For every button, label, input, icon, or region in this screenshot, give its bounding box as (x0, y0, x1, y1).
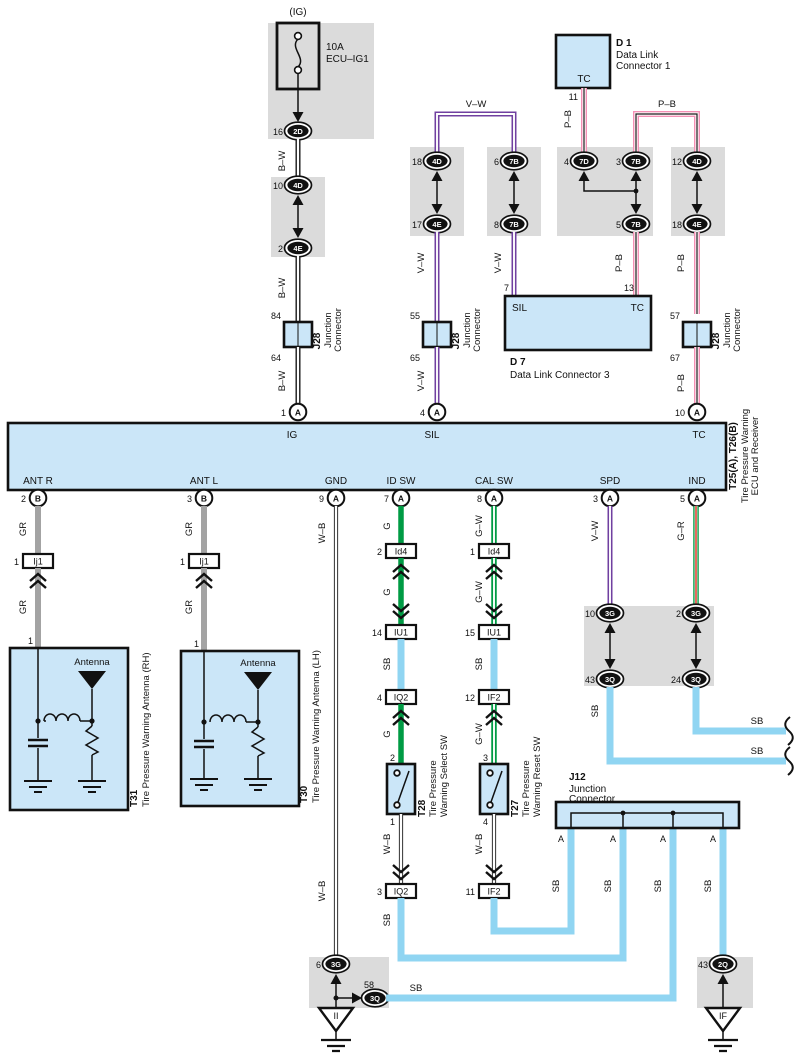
t28-switch (387, 764, 415, 814)
svg-text:A: A (710, 834, 716, 844)
inline-id4-b: Id4 1 (470, 544, 509, 558)
wire-code: G–W (474, 515, 485, 537)
wire-code: G–R (676, 521, 687, 541)
svg-text:9: 9 (319, 494, 324, 504)
svg-text:4: 4 (483, 817, 488, 827)
svg-text:J12: J12 (569, 772, 586, 783)
svg-text:IQ2: IQ2 (394, 887, 409, 897)
svg-text:Data Link: Data Link (616, 50, 659, 61)
svg-text:J28: J28 (451, 332, 462, 349)
svg-text:T28: T28 (417, 799, 428, 817)
ground-ii: II (319, 1008, 353, 1051)
svg-text:4E: 4E (293, 244, 302, 253)
svg-text:67: 67 (670, 353, 680, 363)
svg-text:A: A (491, 494, 497, 504)
svg-text:A: A (434, 408, 440, 418)
svg-text:7D: 7D (579, 157, 589, 166)
svg-text:12: 12 (465, 693, 475, 703)
svg-text:13: 13 (624, 283, 634, 293)
ecu-pin-ant-l: B 3 (187, 490, 212, 507)
svg-text:3G: 3G (605, 609, 615, 618)
svg-text:SPD: SPD (600, 476, 621, 487)
fuse-name: ECU–IG1 (326, 54, 369, 65)
svg-text:2D: 2D (293, 127, 303, 136)
svg-text:43: 43 (585, 675, 595, 685)
svg-text:3: 3 (483, 753, 488, 763)
shield-areas (268, 23, 753, 1008)
svg-text:A: A (660, 834, 666, 844)
svg-text:2: 2 (278, 244, 283, 254)
ecu-pin-sil: A 4 (420, 404, 445, 421)
t30-name: Tire Pressure Warning Antenna (LH) (311, 650, 322, 803)
inline-iu1-b: IU1 15 (465, 625, 509, 639)
svg-text:IU1: IU1 (394, 628, 408, 638)
svg-text:8: 8 (477, 494, 482, 504)
wire-code: P–B (676, 254, 687, 272)
svg-text:3: 3 (187, 494, 192, 504)
wire-code: SB (603, 880, 614, 893)
svg-text:3: 3 (377, 887, 382, 897)
wire-code: SB (590, 705, 601, 718)
svg-text:Connector: Connector (732, 308, 743, 352)
svg-text:5: 5 (616, 220, 621, 230)
wire-code: W–B (474, 834, 485, 855)
t30-code: T30 (299, 785, 310, 803)
t30-antenna-box: Antenna (181, 651, 299, 806)
svg-text:7: 7 (504, 283, 509, 293)
svg-text:Connector: Connector (333, 308, 344, 352)
svg-text:Id4: Id4 (395, 547, 408, 557)
svg-text:IF: IF (719, 1011, 728, 1021)
svg-text:24: 24 (671, 675, 681, 685)
fuse-rating: 10A (326, 42, 344, 53)
wire-code: B–W (277, 278, 288, 299)
svg-text:2Q: 2Q (718, 960, 728, 969)
t31-code: T31 (129, 789, 140, 807)
svg-text:11: 11 (466, 887, 475, 897)
svg-text:15: 15 (465, 628, 475, 638)
wire-code: V–W (416, 253, 427, 274)
d7-connector: 7 13 SIL TC D 7 Data Link Connector 3 (504, 283, 651, 381)
ant-l-circuit: GR Ij1 1 GR 1 Antenna T30 Tire Pressure … (180, 506, 322, 806)
cal-sw-circuit: G–W Id4 1 G–W IU1 15 SB IF2 12 G–W 3 T27… (465, 506, 571, 931)
svg-text:84: 84 (271, 311, 281, 321)
svg-text:8: 8 (494, 220, 499, 230)
svg-text:2: 2 (21, 494, 26, 504)
wire-code: W–B (317, 881, 328, 902)
svg-text:J28: J28 (711, 332, 722, 349)
svg-text:CAL SW: CAL SW (475, 476, 514, 487)
wire-code: V–W (590, 521, 601, 542)
wire-code: GR (18, 522, 29, 536)
svg-text:Connector: Connector (569, 794, 616, 805)
svg-text:A: A (694, 494, 700, 504)
inline-if2-a: IF2 12 (465, 690, 509, 704)
svg-text:43: 43 (698, 960, 708, 970)
svg-text:IND: IND (688, 476, 705, 487)
svg-text:SIL: SIL (512, 303, 527, 314)
inline-if2-b: IF2 11 (466, 884, 509, 898)
continuation-brace (785, 747, 793, 775)
inline-iq2-b: IQ2 3 (377, 884, 416, 898)
t31-antenna-box: Antenna (10, 648, 128, 810)
svg-text:1: 1 (470, 547, 475, 557)
svg-text:D 7: D 7 (510, 357, 526, 368)
wire-code: GR (184, 522, 195, 536)
ecu-pin-spd: A 3 (593, 490, 618, 507)
svg-text:7B: 7B (631, 157, 641, 166)
wire-code: G–W (474, 581, 485, 603)
svg-text:16: 16 (273, 127, 283, 137)
svg-text:IU1: IU1 (487, 628, 501, 638)
svg-text:14: 14 (372, 628, 382, 638)
svg-text:Antenna: Antenna (74, 657, 110, 668)
svg-text:3G: 3G (691, 609, 701, 618)
wire-code: V–W (493, 253, 504, 274)
svg-text:17: 17 (412, 220, 422, 230)
wire-code: SB (751, 746, 764, 757)
svg-text:Antenna: Antenna (240, 658, 276, 669)
svg-text:T27: T27 (510, 799, 521, 817)
inline-iq2-a: IQ2 4 (377, 690, 416, 704)
svg-text:2: 2 (676, 609, 681, 619)
svg-text:T25(A), T26(B): T25(A), T26(B) (728, 422, 739, 490)
svg-text:10: 10 (675, 408, 685, 418)
wire-code: G (382, 522, 393, 529)
svg-text:Connector 1: Connector 1 (616, 61, 671, 72)
svg-text:4: 4 (377, 693, 382, 703)
svg-text:A: A (694, 408, 700, 418)
junction-j28-1: 84 64 J28 Junction Connector (271, 308, 344, 363)
svg-text:7B: 7B (509, 220, 519, 229)
svg-text:ANT L: ANT L (190, 476, 219, 487)
svg-text:18: 18 (672, 220, 682, 230)
svg-text:65: 65 (410, 353, 420, 363)
svg-text:Connector: Connector (472, 308, 483, 352)
svg-text:1: 1 (194, 639, 199, 649)
wire-code: G (382, 588, 393, 595)
svg-text:A: A (333, 494, 339, 504)
svg-text:4: 4 (564, 157, 569, 167)
svg-text:4D: 4D (432, 157, 442, 166)
wire-code: SB (653, 880, 664, 893)
svg-text:TC: TC (631, 303, 644, 314)
svg-text:3: 3 (616, 157, 621, 167)
connector-3q-c: 3Q (362, 989, 389, 1007)
svg-text:4E: 4E (432, 220, 441, 229)
wire-code: B–W (277, 151, 288, 172)
svg-text:Ij1: Ij1 (199, 557, 209, 567)
svg-text:ANT R: ANT R (23, 476, 53, 487)
svg-text:3G: 3G (331, 960, 341, 969)
d1-connector: D 1 Data Link Connector 1 TC 11 (556, 35, 671, 102)
ecu-pin-tc: A 10 (675, 404, 705, 421)
svg-text:Data Link Connector 3: Data Link Connector 3 (510, 370, 610, 381)
svg-text:IQ2: IQ2 (394, 693, 409, 703)
inline-ij1-l: Ij1 1 (180, 554, 219, 568)
svg-text:Warning Select SW: Warning Select SW (439, 735, 450, 817)
svg-text:3Q: 3Q (691, 675, 701, 684)
junction-j28-3: 57 67 J28 Junction Connector (670, 308, 743, 363)
svg-text:5: 5 (680, 494, 685, 504)
j12-box (556, 802, 739, 828)
wire-code: V–W (466, 99, 487, 110)
svg-text:II: II (333, 1011, 338, 1021)
svg-text:57: 57 (670, 311, 680, 321)
inline-ij1-r: Ij1 1 (14, 554, 53, 568)
svg-text:D 1: D 1 (616, 38, 632, 49)
svg-text:IG: IG (287, 430, 298, 441)
wire-code: SB (703, 880, 714, 893)
svg-text:3: 3 (593, 494, 598, 504)
svg-text:IF2: IF2 (487, 887, 500, 897)
svg-text:B: B (35, 494, 41, 504)
svg-text:A: A (610, 834, 616, 844)
ground-if: IF (706, 1008, 740, 1051)
svg-text:A: A (398, 494, 404, 504)
wire-code: P–B (563, 110, 574, 128)
wire-code: W–B (382, 834, 393, 855)
svg-text:10: 10 (585, 609, 595, 619)
svg-text:4D: 4D (293, 181, 303, 190)
svg-text:4: 4 (420, 408, 425, 418)
svg-text:7: 7 (384, 494, 389, 504)
svg-text:2: 2 (377, 547, 382, 557)
ecu-pin-ig: A 1 (281, 404, 306, 421)
svg-text:A: A (558, 834, 564, 844)
ecu-box: IG SIL TC ANT R ANT L GND ID SW CAL SW S… (8, 409, 761, 506)
svg-text:3Q: 3Q (605, 675, 615, 684)
svg-text:1: 1 (281, 408, 286, 418)
svg-text:7B: 7B (509, 157, 519, 166)
svg-text:Ij1: Ij1 (33, 557, 43, 567)
continuation-brace (785, 717, 793, 745)
svg-text:ID SW: ID SW (387, 476, 416, 487)
svg-text:6: 6 (316, 960, 321, 970)
wire-code: SB (474, 658, 485, 671)
svg-text:4D: 4D (692, 157, 702, 166)
wire-code: SB (382, 658, 393, 671)
wire-code: B–W (277, 371, 288, 392)
ecu-pin-gnd: A 9 (319, 490, 344, 507)
svg-text:6: 6 (494, 157, 499, 167)
t31-name: Tire Pressure Warning Antenna (RH) (141, 652, 152, 807)
wiring-diagram: (IG) 10A ECU–IG1 2D 16 B–W 4D 10 4E 2 B–… (0, 0, 802, 1062)
svg-text:TC: TC (577, 74, 590, 85)
wire-code: V–W (416, 371, 427, 392)
svg-text:B: B (201, 494, 207, 504)
ecu-pin-ant-r: B 2 (21, 490, 46, 507)
svg-text:1: 1 (28, 636, 33, 646)
ecu-pin-ind: A 5 (680, 490, 705, 507)
inline-iu1-a: IU1 14 (372, 625, 416, 639)
svg-text:SIL: SIL (424, 430, 439, 441)
wire-code: W–B (317, 523, 328, 544)
junction-j28-2: 55 65 J28 Junction Connector (410, 308, 483, 363)
svg-text:1: 1 (14, 557, 19, 567)
svg-text:TC: TC (692, 430, 705, 441)
svg-text:GND: GND (325, 476, 347, 487)
svg-text:64: 64 (271, 353, 281, 363)
svg-text:Tire Pressure: Tire Pressure (521, 760, 532, 817)
svg-text:A: A (607, 494, 613, 504)
svg-text:55: 55 (410, 311, 420, 321)
svg-text:2: 2 (390, 753, 395, 763)
svg-text:4E: 4E (692, 220, 701, 229)
wire-code: SB (751, 716, 764, 727)
wire-code: G (382, 730, 393, 737)
svg-text:12: 12 (672, 157, 682, 167)
svg-text:10: 10 (273, 181, 283, 191)
svg-text:3Q: 3Q (370, 994, 380, 1003)
inline-id4-a: Id4 2 (377, 544, 416, 558)
t27-switch (480, 764, 508, 814)
svg-text:IF2: IF2 (487, 693, 500, 703)
svg-text:18: 18 (412, 157, 422, 167)
wire-code: SB (551, 880, 562, 893)
svg-text:Warning Reset SW: Warning Reset SW (532, 737, 543, 817)
wire-code: P–B (676, 374, 687, 392)
svg-text:1: 1 (180, 557, 185, 567)
fuse-location-label: (IG) (289, 7, 306, 18)
wire-code: GR (18, 600, 29, 614)
svg-text:A: A (295, 408, 301, 418)
svg-text:7B: 7B (631, 220, 641, 229)
wire-code: G–W (474, 723, 485, 745)
svg-text:J28: J28 (312, 332, 323, 349)
svg-text:Tire Pressure: Tire Pressure (428, 760, 439, 817)
wire-code: GR (184, 600, 195, 614)
wire-code: SB (382, 914, 393, 927)
wiring-diagram-page: (IG) 10A ECU–IG1 2D 16 B–W 4D 10 4E 2 B–… (0, 0, 802, 1062)
svg-text:11: 11 (569, 92, 578, 102)
wire-code: SB (410, 983, 423, 994)
ecu-pin-id-sw: A 7 (384, 490, 409, 507)
svg-text:1: 1 (390, 817, 395, 827)
ant-r-circuit: GR Ij1 1 GR 1 Antenna T31 Tire Pressure … (10, 506, 152, 810)
svg-text:ECU and Receiver: ECU and Receiver (750, 417, 761, 496)
wire-code: P–B (658, 99, 676, 110)
wire-code: P–B (614, 254, 625, 272)
svg-text:Id4: Id4 (488, 547, 501, 557)
ecu-pin-cal-sw: A 8 (477, 490, 502, 507)
